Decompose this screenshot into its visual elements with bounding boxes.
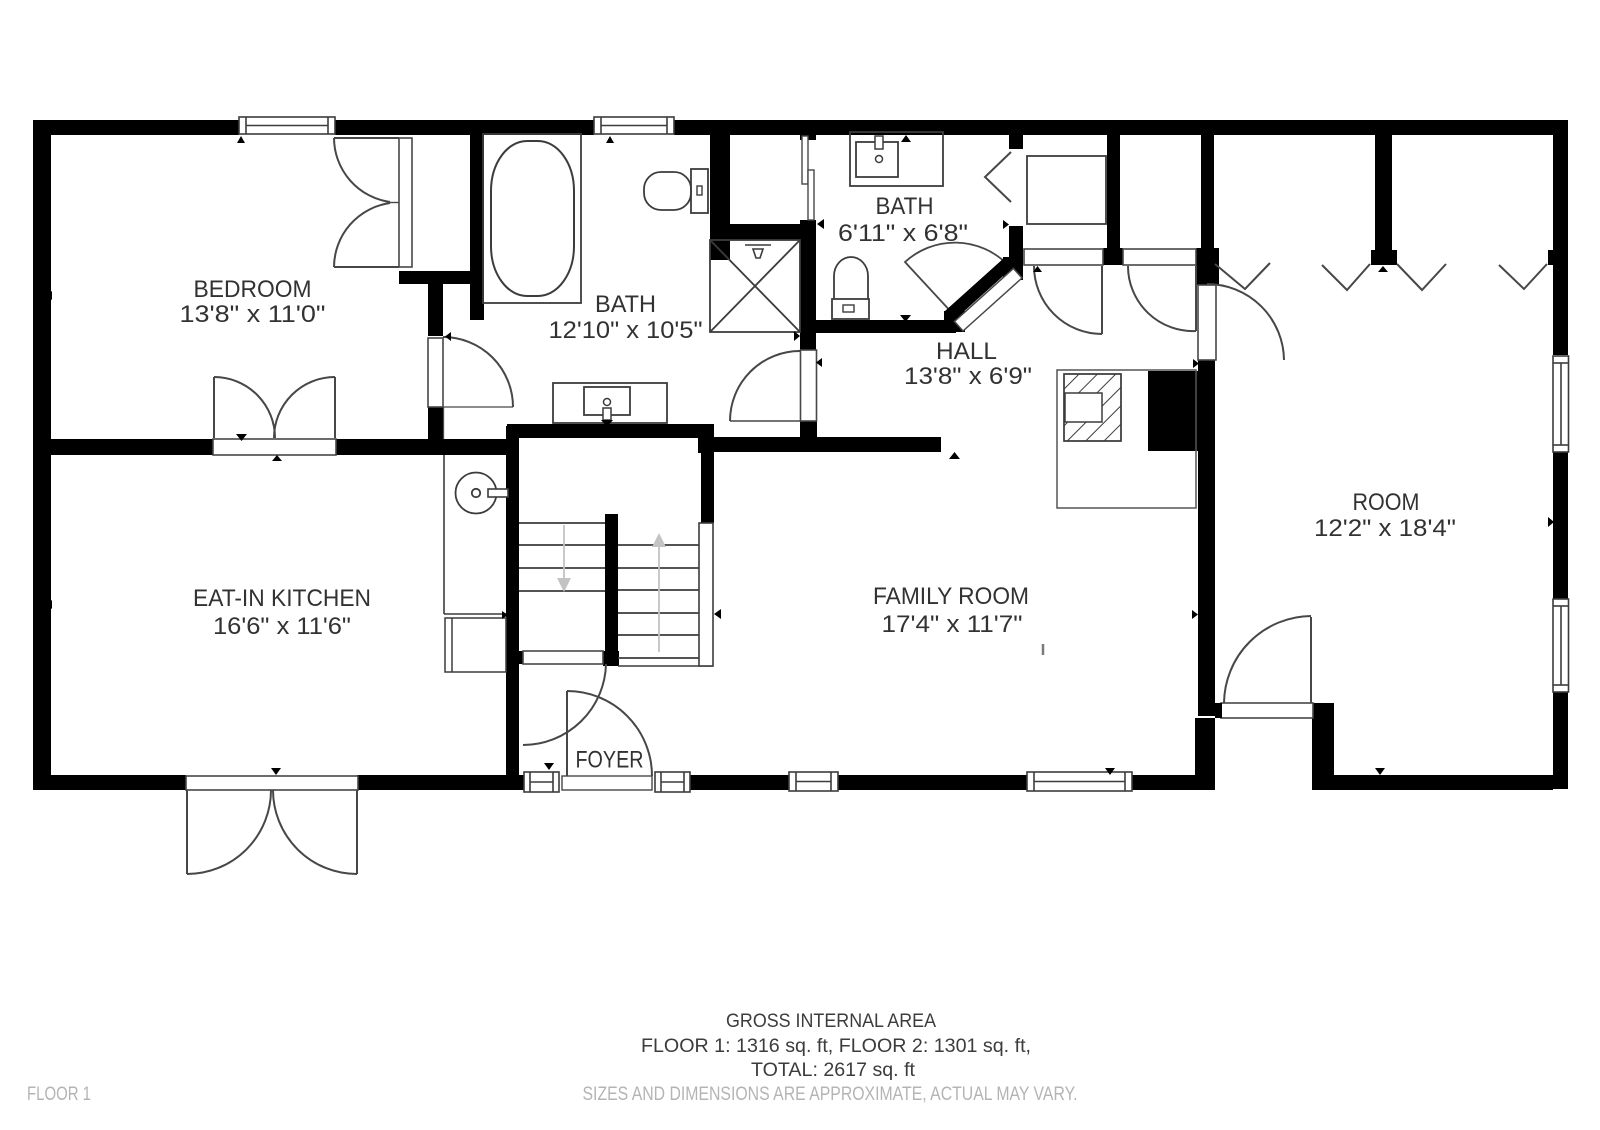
svg-text:FAMILY ROOM: FAMILY ROOM: [873, 583, 1029, 610]
svg-text:17'4" x 11'7": 17'4" x 11'7": [882, 611, 1023, 638]
svg-text:FLOOR 1: 1316 sq. ft, FLOOR 2:: FLOOR 1: 1316 sq. ft, FLOOR 2: 1301 sq. …: [641, 1036, 1031, 1057]
svg-text:TOTAL: 2617 sq. ft: TOTAL: 2617 sq. ft: [751, 1060, 916, 1081]
svg-text:BATH: BATH: [595, 291, 656, 318]
svg-text:16'6" x 11'6": 16'6" x 11'6": [213, 613, 351, 640]
svg-text:SIZES AND DIMENSIONS ARE APPRO: SIZES AND DIMENSIONS ARE APPROXIMATE, AC…: [583, 1084, 1078, 1105]
svg-text:BATH: BATH: [876, 193, 934, 220]
svg-text:FOYER: FOYER: [576, 747, 644, 774]
svg-text:6'11" x 6'8": 6'11" x 6'8": [838, 220, 968, 247]
svg-text:HALL: HALL: [936, 338, 997, 365]
svg-text:ROOM: ROOM: [1353, 489, 1420, 516]
svg-text:FLOOR 1: FLOOR 1: [27, 1084, 91, 1105]
svg-text:12'10" x 10'5": 12'10" x 10'5": [549, 317, 703, 344]
svg-text:BEDROOM: BEDROOM: [194, 276, 312, 303]
svg-text:GROSS INTERNAL AREA: GROSS INTERNAL AREA: [726, 1011, 936, 1032]
svg-text:EAT-IN KITCHEN: EAT-IN KITCHEN: [193, 585, 371, 612]
svg-text:12'2" x 18'4": 12'2" x 18'4": [1314, 515, 1456, 542]
svg-text:13'8" x 11'0": 13'8" x 11'0": [180, 301, 326, 328]
svg-text:13'8" x 6'9": 13'8" x 6'9": [904, 363, 1032, 390]
